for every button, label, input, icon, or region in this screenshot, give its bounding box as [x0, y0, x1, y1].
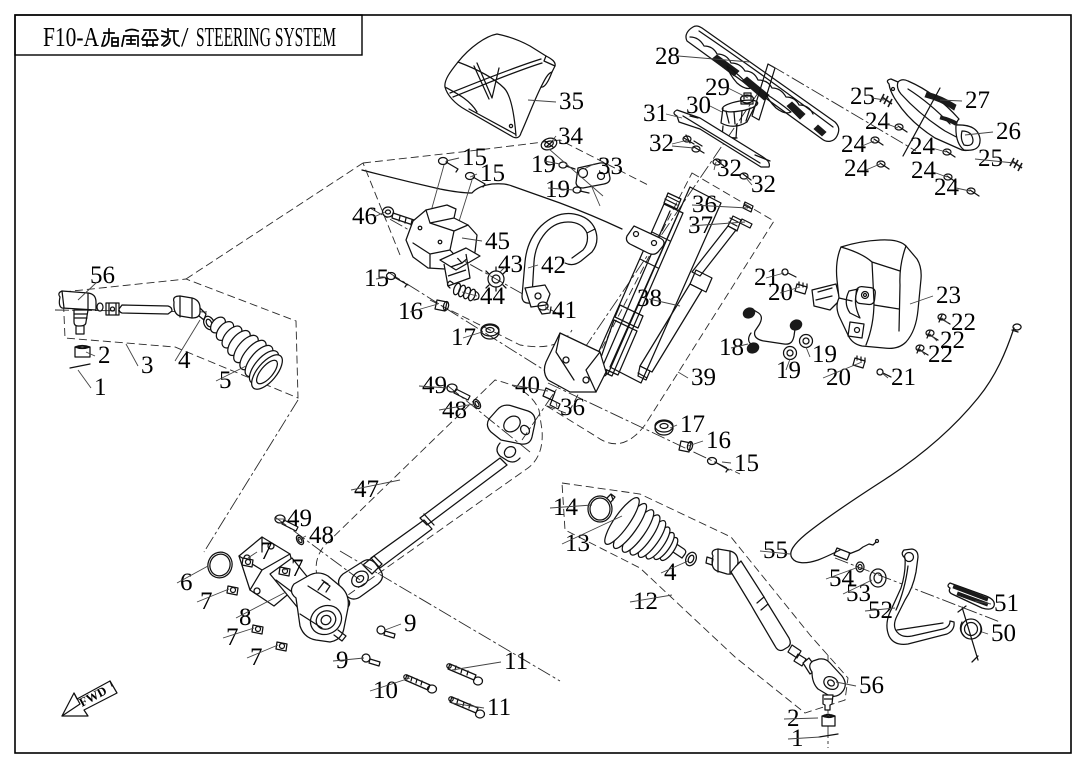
svg-text:8: 8	[239, 604, 252, 631]
svg-text:2: 2	[98, 342, 111, 369]
svg-text:55: 55	[763, 537, 788, 564]
svg-text:7: 7	[200, 588, 213, 615]
svg-text:STEERING SYSTEM: STEERING SYSTEM	[196, 22, 336, 52]
svg-text:35: 35	[559, 88, 584, 115]
svg-text:11: 11	[487, 694, 511, 721]
svg-text:7: 7	[291, 555, 304, 582]
svg-text:17: 17	[680, 411, 705, 438]
svg-text:9: 9	[404, 610, 417, 637]
svg-text:6: 6	[180, 569, 193, 596]
svg-text:19: 19	[776, 357, 801, 384]
svg-text:26: 26	[996, 118, 1021, 145]
svg-text:24: 24	[910, 133, 936, 160]
svg-text:3: 3	[141, 352, 154, 379]
svg-text:32: 32	[649, 130, 674, 157]
svg-text:51: 51	[994, 590, 1019, 617]
svg-text:42: 42	[541, 252, 566, 279]
svg-text:47: 47	[354, 476, 379, 503]
svg-text:38: 38	[637, 285, 662, 312]
svg-text:15: 15	[480, 160, 505, 187]
svg-text:16: 16	[706, 427, 731, 454]
svg-text:48: 48	[442, 397, 467, 424]
svg-text:10: 10	[373, 677, 398, 704]
svg-text:4: 4	[178, 347, 191, 374]
svg-text:1: 1	[94, 374, 107, 401]
svg-text:21: 21	[891, 364, 916, 391]
svg-text:F10-A: F10-A	[43, 22, 99, 52]
svg-text:39: 39	[691, 364, 716, 391]
svg-text:12: 12	[633, 588, 658, 615]
svg-text:34: 34	[558, 123, 584, 150]
svg-text:24: 24	[911, 157, 937, 184]
svg-text:22: 22	[928, 341, 953, 368]
svg-text:46: 46	[352, 203, 377, 230]
svg-text:7: 7	[226, 624, 239, 651]
svg-text:24: 24	[841, 131, 867, 158]
svg-text:48: 48	[309, 522, 334, 549]
svg-text:31: 31	[643, 100, 668, 127]
svg-text:50: 50	[991, 620, 1016, 647]
svg-text:7: 7	[250, 644, 263, 671]
svg-text:36: 36	[560, 394, 585, 421]
svg-text:13: 13	[565, 530, 590, 557]
svg-text:11: 11	[504, 648, 528, 675]
svg-text:4: 4	[664, 559, 677, 586]
svg-text:24: 24	[844, 155, 870, 182]
svg-text:25: 25	[978, 145, 1003, 172]
svg-text:19: 19	[531, 151, 556, 178]
svg-text:56: 56	[859, 672, 884, 699]
svg-text:30: 30	[686, 92, 711, 119]
svg-text:32: 32	[751, 171, 776, 198]
svg-text:23: 23	[936, 282, 961, 309]
svg-text:27: 27	[965, 87, 990, 114]
svg-text:24: 24	[934, 174, 960, 201]
svg-text:33: 33	[598, 153, 623, 180]
svg-text:25: 25	[850, 83, 875, 110]
svg-text:5: 5	[219, 367, 232, 394]
svg-text:49: 49	[422, 372, 447, 399]
svg-text:/: /	[181, 22, 189, 52]
svg-text:41: 41	[552, 297, 577, 324]
svg-text:43: 43	[498, 251, 523, 278]
svg-text:32: 32	[717, 155, 742, 182]
svg-text:7: 7	[260, 538, 273, 565]
svg-text:28: 28	[655, 43, 680, 70]
svg-text:40: 40	[515, 372, 540, 399]
svg-text:24: 24	[865, 108, 891, 135]
svg-text:44: 44	[480, 283, 506, 310]
svg-text:15: 15	[734, 450, 759, 477]
